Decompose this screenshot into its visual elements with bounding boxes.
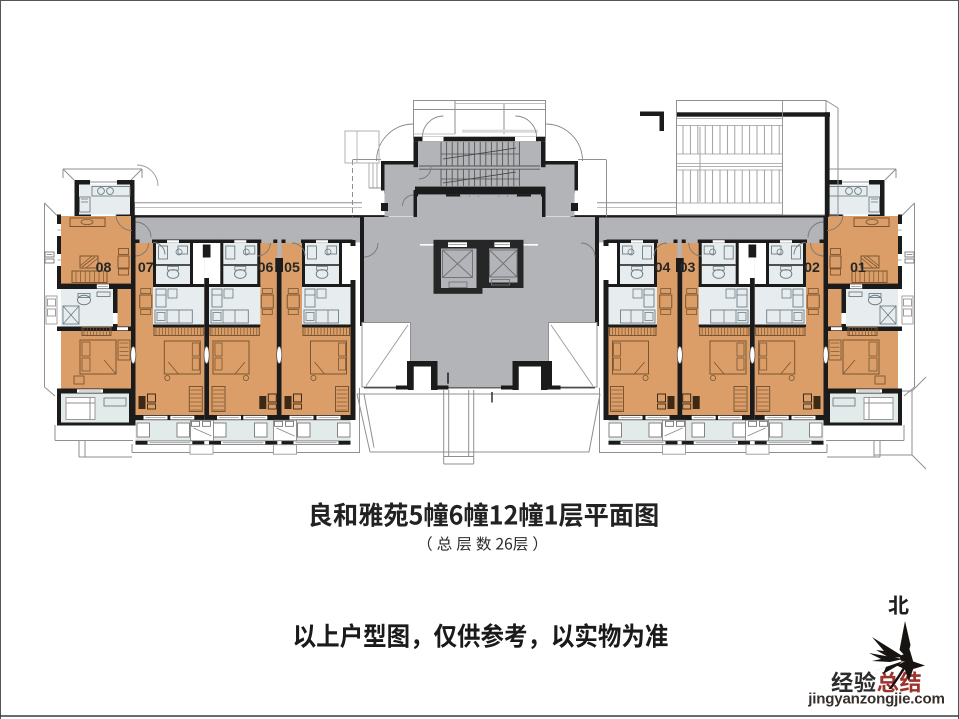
svg-text:02: 02 [804,260,820,276]
svg-text:jingyanzongjie.com: jingyanzongjie.com [807,691,944,708]
svg-text:01: 01 [850,260,866,276]
svg-text:08: 08 [96,260,112,276]
svg-text:04: 04 [655,260,671,276]
svg-text:06: 06 [258,260,274,276]
svg-text:03: 03 [680,260,696,276]
svg-text:05: 05 [284,260,300,276]
svg-text:07: 07 [138,260,154,276]
